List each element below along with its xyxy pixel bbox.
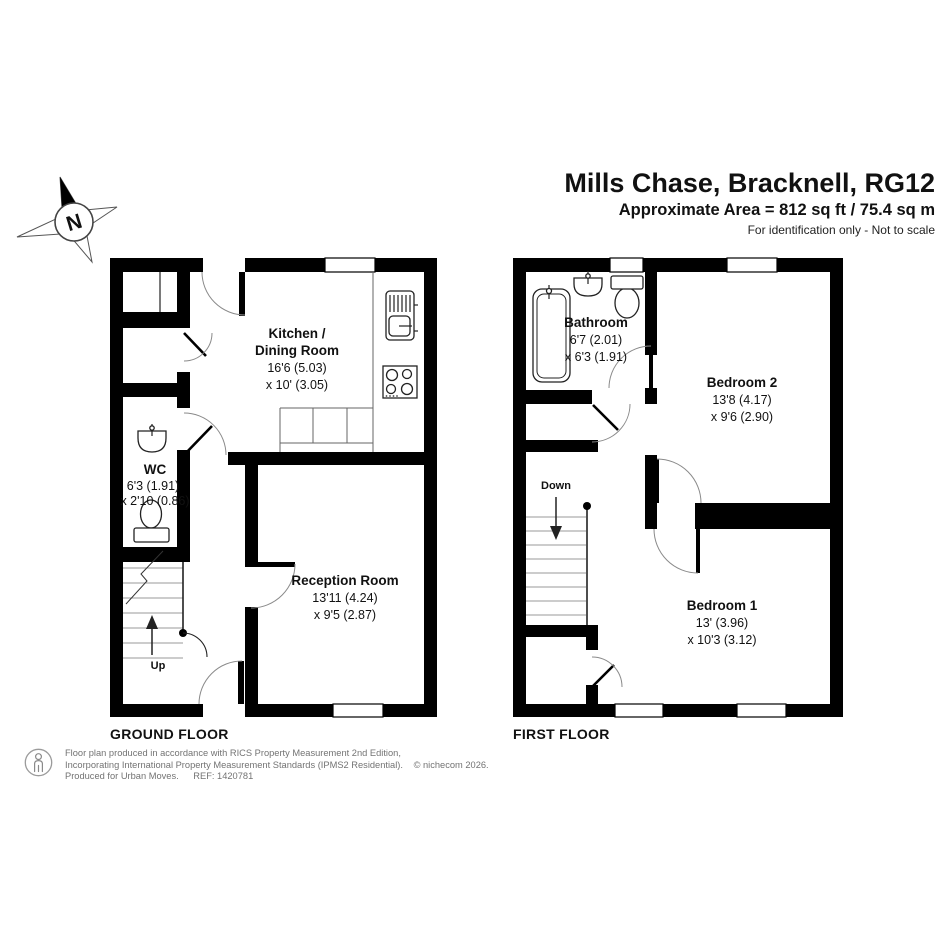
basin-tap-icon xyxy=(586,274,590,278)
first-floor-labels: Bathroom 6'7 (2.01) x 6'3 (1.91) Bedroom… xyxy=(541,315,777,647)
ground-floor-stairs xyxy=(123,551,207,658)
bedroom1-door-arc xyxy=(654,529,698,573)
bath-tap-icon xyxy=(547,289,552,294)
footer-line-2: Incorporating International Property Mea… xyxy=(65,760,489,772)
footer: Floor plan produced in accordance with R… xyxy=(24,748,489,783)
bath-icon xyxy=(533,289,570,382)
stair-newel xyxy=(583,502,591,510)
bathroom-dim-1: 6'7 (2.01) xyxy=(570,333,622,347)
bedroom2-door-arc xyxy=(657,459,701,503)
person-badge-icon xyxy=(24,748,53,777)
wc-label: WC xyxy=(144,462,167,477)
bedroom2-dim-2: x 9'6 (2.90) xyxy=(711,410,773,424)
page-title: Mills Chase, Bracknell, RG12 xyxy=(564,168,935,198)
reception-door-arc xyxy=(251,564,295,608)
reception-dim-2: x 9'5 (2.87) xyxy=(314,608,376,622)
cupboard-door-leaf xyxy=(593,665,614,686)
ground-floor-plan: Kitchen / Dining Room 16'6 (5.03) x 10' … xyxy=(105,253,445,725)
floorplan-page: { "header": { "title": "Mills Chase, Bra… xyxy=(0,0,945,945)
closet-door-leaf xyxy=(184,333,206,356)
wc-dim-2: x 2'10 (0.86) xyxy=(120,494,189,508)
bedroom1-dim-2: x 10'3 (3.12) xyxy=(687,633,756,647)
first-floor-stairs xyxy=(526,497,591,625)
bathroom-dim-2: x 6'3 (1.91) xyxy=(565,350,627,364)
window xyxy=(737,704,786,717)
footer-produced-for: Produced for Urban Moves. xyxy=(65,771,179,781)
kitchen-dim-2: x 10' (3.05) xyxy=(266,378,328,392)
up-label: Up xyxy=(151,660,166,672)
approximate-area: Approximate Area = 812 sq ft / 75.4 sq m xyxy=(564,198,935,222)
window xyxy=(325,258,375,272)
first-floor-plan: Bathroom 6'7 (2.01) x 6'3 (1.91) Bedroom… xyxy=(505,253,850,725)
bedroom2-dim-1: 13'8 (4.17) xyxy=(712,393,771,407)
footer-ref: REF: 1420781 xyxy=(193,771,253,781)
window xyxy=(615,704,663,717)
window xyxy=(333,704,383,717)
closet-door-leaf xyxy=(593,405,618,430)
footer-line-2-text: Incorporating International Property Mea… xyxy=(65,760,403,770)
header: Mills Chase, Bracknell, RG12 Approximate… xyxy=(564,168,935,238)
wc-dim-1: 6'3 (1.91) xyxy=(127,479,179,493)
down-label: Down xyxy=(541,480,571,492)
window xyxy=(727,258,777,272)
front-door-arc xyxy=(199,661,242,704)
kitchen-label: Kitchen / xyxy=(268,326,325,341)
identification-note: For identification only - Not to scale xyxy=(564,222,935,238)
bedroom2-label: Bedroom 2 xyxy=(707,375,778,390)
up-arrow-head xyxy=(146,615,158,629)
bedroom1-dim-1: 13' (3.96) xyxy=(696,616,748,630)
toilet-icon xyxy=(615,288,639,318)
back-door-arc xyxy=(202,272,245,315)
footer-copyright: © nichecom 2026. xyxy=(414,760,489,770)
kitchen-dim-1: 16'6 (5.03) xyxy=(267,361,326,375)
ground-floor-windows xyxy=(325,258,383,717)
reception-label: Reception Room xyxy=(291,573,398,588)
down-arrow-head xyxy=(550,526,562,540)
footer-text: Floor plan produced in accordance with R… xyxy=(65,748,489,783)
footer-line-3: Produced for Urban Moves. REF: 1420781 xyxy=(65,771,489,783)
footer-line-1: Floor plan produced in accordance with R… xyxy=(65,748,489,760)
bedroom1-label: Bedroom 1 xyxy=(687,598,758,613)
ground-floor-labels: Kitchen / Dining Room 16'6 (5.03) x 10' … xyxy=(120,326,398,672)
toilet-cistern xyxy=(611,276,643,289)
first-floor-caption: FIRST FLOOR xyxy=(513,726,610,742)
bathroom-label: Bathroom xyxy=(564,315,628,330)
hall-door-leaf xyxy=(184,426,212,455)
reception-dim-1: 13'11 (4.24) xyxy=(312,591,377,605)
window xyxy=(610,258,643,272)
ground-floor-caption: GROUND FLOOR xyxy=(110,726,229,742)
kitchen-label-2: Dining Room xyxy=(255,343,339,358)
